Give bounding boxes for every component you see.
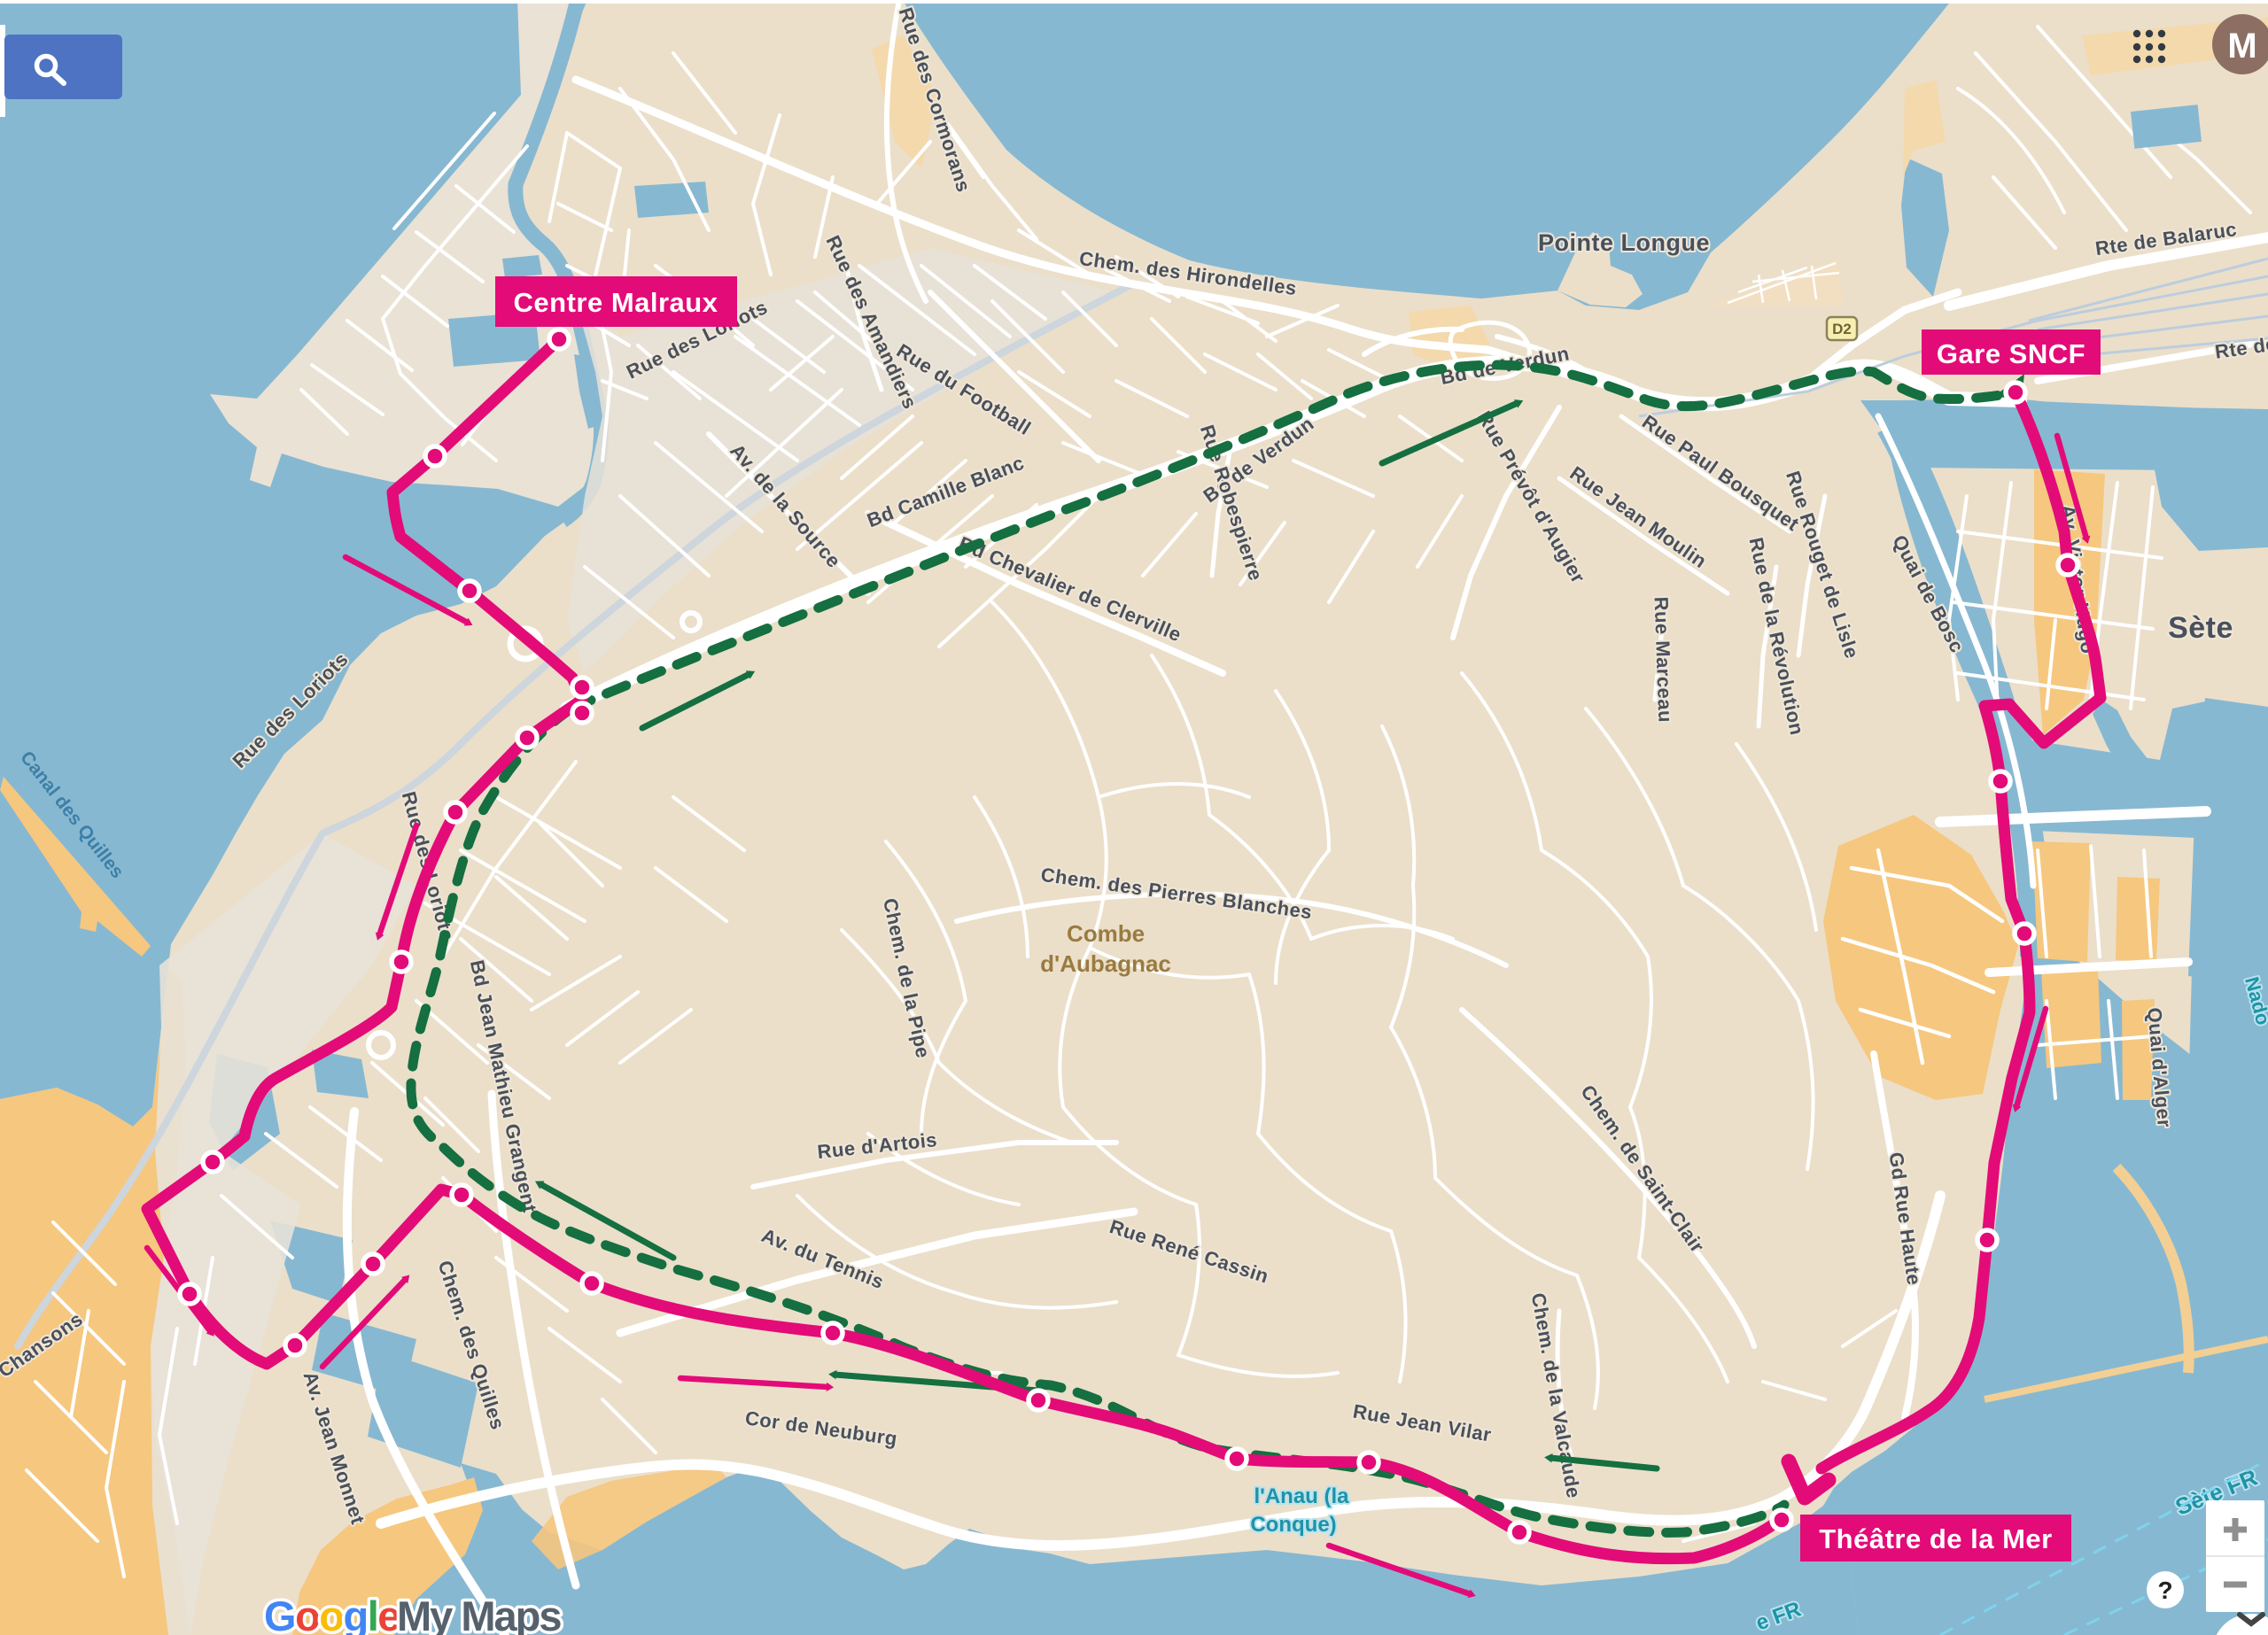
svg-text:Gare SNCF: Gare SNCF: [1937, 338, 2085, 369]
svg-text:Sète: Sète: [2168, 611, 2233, 645]
svg-text:D2: D2: [1832, 321, 1852, 337]
svg-text:Conque): Conque): [1250, 1513, 1336, 1537]
svg-text:l'Anau (la: l'Anau (la: [1254, 1484, 1349, 1508]
svg-text:d'Aubagnac: d'Aubagnac: [1040, 950, 1171, 977]
svg-text:Théâtre de la Mer: Théâtre de la Mer: [1819, 1523, 2052, 1554]
svg-text:My Maps: My Maps: [397, 1592, 561, 1635]
svg-text:M: M: [2227, 27, 2256, 66]
svg-text:Google: Google: [264, 1592, 400, 1635]
svg-text:?: ?: [2157, 1577, 2172, 1604]
svg-text:Combe: Combe: [1067, 920, 1145, 947]
svg-text:Rue Marceau: Rue Marceau: [1651, 596, 1677, 723]
svg-text:Pointe Longue: Pointe Longue: [1538, 229, 1710, 256]
svg-text:Centre Malraux: Centre Malraux: [514, 287, 718, 318]
